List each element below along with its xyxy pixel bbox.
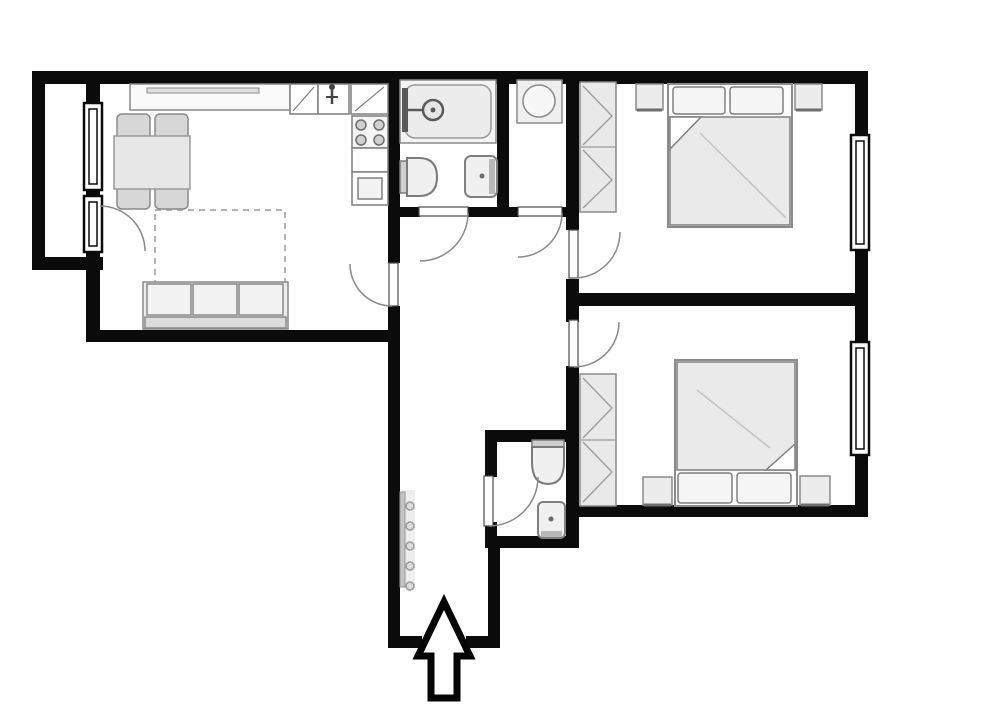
- window-bedroom2-inner: [856, 348, 864, 449]
- bed1-pillow-left: [673, 87, 725, 114]
- door-balcony-arc: [100, 206, 145, 251]
- sideboard-shelf-line: [147, 88, 259, 93]
- wall-bedroom2-left-lower: [566, 430, 579, 548]
- door-bedroom1-leaf: [569, 230, 578, 278]
- bathtub-inner: [405, 85, 491, 138]
- door-bath-leaf: [419, 207, 468, 216]
- wall-bedroom-divider: [566, 293, 868, 306]
- toilet1-bowl: [407, 158, 437, 196]
- stove-burner-1: [356, 120, 366, 130]
- window-balcony-door-inner: [89, 202, 97, 246]
- sofa-back: [145, 317, 286, 328]
- wall-bath-bottom-left: [388, 207, 420, 217]
- coat-hook-4: [406, 562, 414, 570]
- wall-hall-right-lower: [488, 548, 500, 648]
- stove-burner-3: [356, 135, 366, 145]
- sofa-seat-3: [239, 284, 283, 315]
- bed1-blanket: [670, 117, 790, 225]
- carpet: [155, 210, 285, 283]
- bathtub-faucet-bar: [402, 88, 408, 132]
- wall-bedroom1-left: [566, 71, 579, 230]
- entrance-arrow: [418, 602, 470, 698]
- door-living-leaf: [389, 263, 398, 306]
- wall-wc2-bottom: [485, 536, 579, 548]
- nightstand1-left: [636, 84, 663, 110]
- wall-bath-wc-divider: [497, 71, 509, 217]
- stove-burner-2: [374, 120, 384, 130]
- kitchen-oven-inner: [358, 178, 382, 199]
- stove-burner-4: [374, 135, 384, 145]
- nightstand2-left: [643, 477, 672, 505]
- sofa-seat-1: [147, 284, 191, 315]
- wall-wc2-left-upper: [485, 430, 497, 477]
- door-wc2-arc: [489, 477, 538, 526]
- wall-balcony-left: [32, 71, 45, 270]
- basin1-edge: [489, 159, 495, 194]
- window-bedroom1-inner: [856, 141, 864, 244]
- kitchen-faucet-head: [329, 84, 335, 90]
- wall-living-bottom: [86, 330, 400, 342]
- wall-living-left-top: [86, 71, 100, 105]
- kitchen-counter-mid: [352, 148, 388, 172]
- door-wc2-leaf: [484, 476, 493, 526]
- door-bedroom1-arc: [574, 232, 620, 278]
- basin2-drain: [549, 517, 554, 522]
- door-wc-leaf: [518, 207, 562, 216]
- wall-living-left-bottom: [86, 250, 100, 342]
- bed1-pillow-right: [730, 87, 783, 114]
- bathtub-shower-dot: [431, 108, 436, 113]
- door-bedroom2-arc: [574, 322, 619, 367]
- coat-hook-5: [406, 582, 414, 590]
- wall-bath-bottom-mid: [467, 207, 519, 217]
- toilet2-bowl: [532, 447, 564, 484]
- sofa-seat-2: [193, 284, 237, 315]
- basin2-edge: [541, 531, 562, 537]
- coat-hook-1: [406, 502, 414, 510]
- floor-plan-svg: [0, 0, 1000, 723]
- washing-machine-drum: [523, 85, 555, 117]
- wall-hall-left-lower: [388, 306, 400, 648]
- basin1-drain: [480, 174, 485, 179]
- wall-right-top: [855, 71, 868, 137]
- door-bedroom2-leaf: [569, 320, 578, 367]
- window-living-1-inner: [89, 109, 97, 184]
- bed2-pillow-right: [737, 473, 791, 503]
- floor-plan: [0, 0, 1000, 723]
- nightstand1-right: [795, 84, 822, 110]
- wall-entry-left: [388, 636, 422, 648]
- nightstand2-right: [800, 476, 830, 505]
- coat-hook-3: [406, 542, 414, 550]
- door-living-arc: [350, 264, 392, 306]
- door-wc-arc: [518, 213, 562, 257]
- wall-hall-left-upper: [388, 71, 400, 263]
- wall-right-mid: [855, 248, 868, 344]
- bed2-blanket: [677, 362, 795, 470]
- dining-table: [114, 136, 190, 189]
- door-bath-arc: [420, 213, 468, 261]
- coat-rack-bar: [400, 492, 405, 587]
- coat-hook-2: [406, 522, 414, 530]
- bed2-pillow-left: [678, 473, 732, 503]
